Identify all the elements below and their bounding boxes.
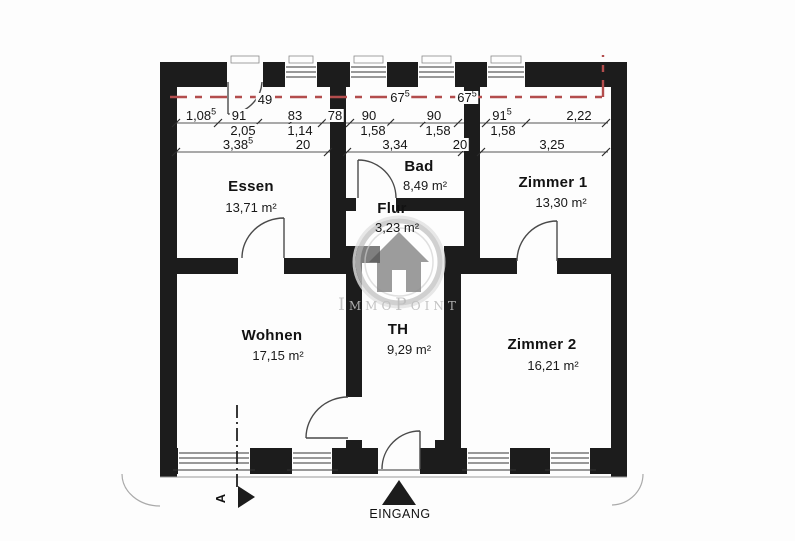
window-opening [418, 62, 455, 87]
dim-mid-5: 1,58 [488, 124, 517, 137]
section-letter: A [213, 494, 228, 503]
dim-total-5: 3,25 [537, 138, 566, 151]
room-area-th: 9,29 m² [387, 343, 431, 356]
wall-stub [435, 440, 453, 450]
room-label-essen: Essen [228, 179, 274, 194]
dim-total-1: 3,385 [221, 138, 255, 151]
dim-detail-8: 2,22 [564, 109, 593, 122]
wall-flur-zimmer1 [464, 87, 480, 263]
dim-total-3: 3,34 [380, 138, 409, 151]
wall-bad-bottom-left [346, 198, 356, 211]
corner-arcs [122, 474, 643, 506]
dim-detail-4: 78 [326, 109, 344, 122]
dim-detail-2: 91 [230, 109, 248, 122]
corner-arc-left [122, 474, 160, 506]
entrance-label: EINGANG [369, 508, 430, 521]
window-opening [285, 62, 317, 87]
dim-detail-6: 90 [425, 109, 443, 122]
watermark-text: ImmoPoint [338, 297, 460, 314]
floorplan-page: 49 675 675 1,085 91 83 78 90 90 915 2,22… [0, 0, 795, 541]
wall-zimmer1-zimmer2-left [461, 258, 517, 274]
section-arrow-icon [238, 486, 255, 508]
dim-mid-4: 1,58 [423, 124, 452, 137]
room-area-flur: 3,23 m² [375, 221, 419, 234]
bottom-openings [160, 448, 627, 477]
room-label-th: TH [388, 322, 409, 337]
dim-total-2: 20 [294, 138, 312, 151]
bad-door-swing [358, 160, 396, 198]
essen-door-swing [242, 218, 284, 258]
wall-essen-wohnen-right [284, 258, 330, 274]
dim-window-3: 675 [455, 91, 478, 104]
window-opening [350, 62, 387, 87]
wohnen-th-door-swing [306, 397, 348, 438]
window-opening [487, 62, 525, 87]
room-label-zimmer2: Zimmer 2 [507, 337, 576, 352]
wall-zimmer1-zimmer2-right [557, 258, 611, 274]
dim-window-1: 49 [256, 93, 274, 106]
corner-arc-right [612, 474, 643, 505]
entrance-arrow-icon [382, 480, 416, 505]
dim-detail-5: 90 [360, 109, 378, 122]
room-area-wohnen: 17,15 m² [252, 349, 303, 362]
zimmer1-door-swing [517, 221, 557, 261]
room-label-bad: Bad [404, 159, 433, 174]
wall-th-right [444, 263, 461, 450]
room-label-zimmer1: Zimmer 1 [518, 175, 587, 190]
room-area-zimmer2: 16,21 m² [527, 359, 578, 372]
dim-mid-2: 1,14 [285, 124, 314, 137]
dim-mid-1: 2,05 [228, 124, 257, 137]
dim-mid-3: 1,58 [358, 124, 387, 137]
room-area-essen: 13,71 m² [225, 201, 276, 214]
dim-detail-7: 915 [490, 109, 513, 122]
wall-essen-wohnen-left [176, 258, 238, 274]
room-label-wohnen: Wohnen [242, 328, 303, 343]
right-wall [611, 62, 627, 477]
room-area-bad: 8,49 m² [403, 179, 447, 192]
floorplan-drawing [0, 0, 795, 541]
wall-th-left-foot [346, 440, 362, 450]
dim-total-4: 20 [451, 138, 469, 151]
dim-detail-1: 1,085 [184, 109, 218, 122]
dim-detail-3: 83 [286, 109, 304, 122]
room-area-zimmer1: 13,30 m² [535, 196, 586, 209]
room-label-flur: Flur [377, 201, 407, 216]
balcony-door-opening [227, 62, 263, 87]
dim-window-2: 675 [388, 91, 411, 104]
window-sills-top [231, 56, 521, 63]
